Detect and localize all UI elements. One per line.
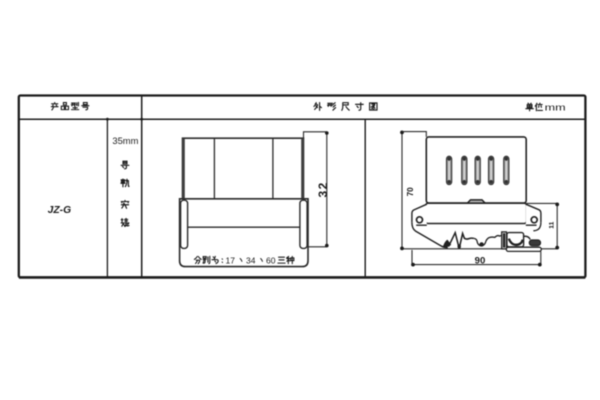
svg-text:JZ-G: JZ-G [48,205,72,216]
svg-text:90: 90 [475,256,486,267]
svg-text:35mm: 35mm [112,136,138,146]
svg-text:60: 60 [266,255,276,265]
svg-text:17: 17 [226,255,236,265]
svg-text:70: 70 [406,187,415,197]
svg-text:32: 32 [316,181,330,197]
svg-text:34: 34 [246,255,256,265]
svg-text:mm: mm [545,103,566,114]
svg-text:11: 11 [548,221,555,228]
